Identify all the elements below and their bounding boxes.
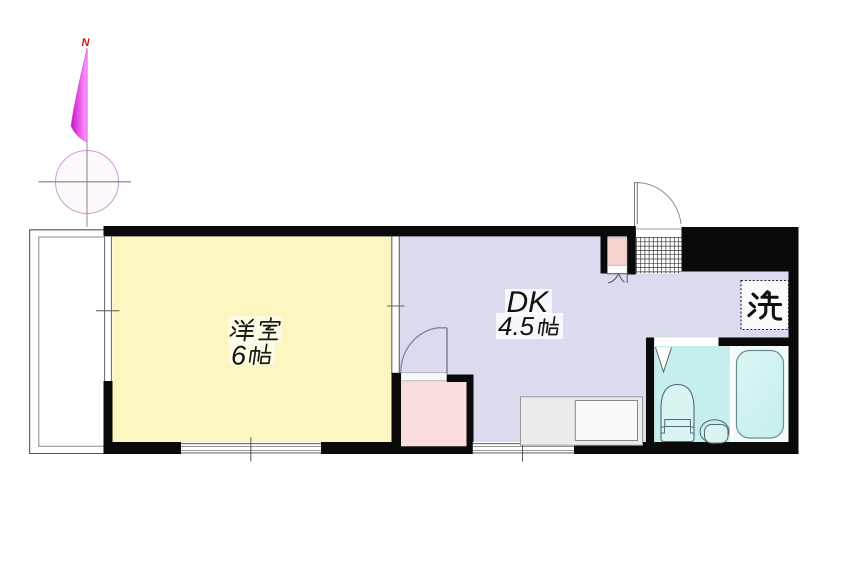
svg-text:6: 6 <box>231 341 247 371</box>
svg-text:N: N <box>82 37 91 49</box>
svg-text:4.5: 4.5 <box>498 311 535 341</box>
